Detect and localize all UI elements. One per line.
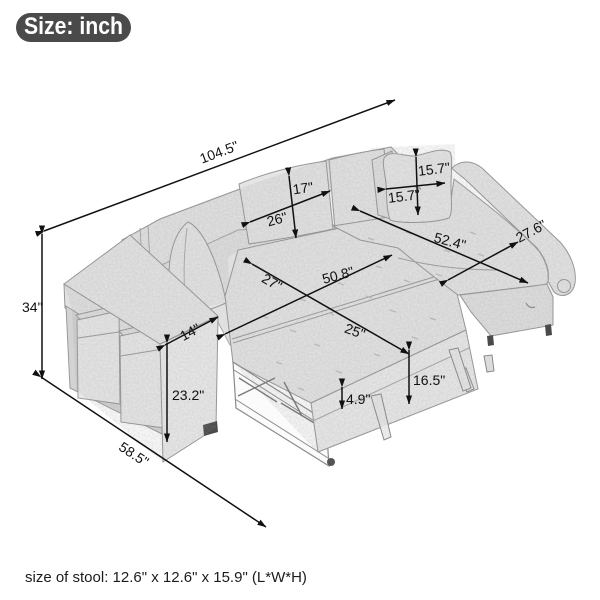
svg-text:Size: inch: Size: inch [24,13,123,40]
svg-text:34": 34" [22,299,43,315]
svg-text:16.5": 16.5" [413,372,445,388]
svg-text:size of stool: 12.6" x 12.6" x: size of stool: 12.6" x 12.6" x 15.9" (L*… [25,569,307,586]
svg-text:23.2": 23.2" [172,387,204,403]
svg-text:4.9": 4.9" [346,391,370,407]
svg-text:17": 17" [292,179,315,198]
svg-text:104.5": 104.5" [197,137,240,166]
